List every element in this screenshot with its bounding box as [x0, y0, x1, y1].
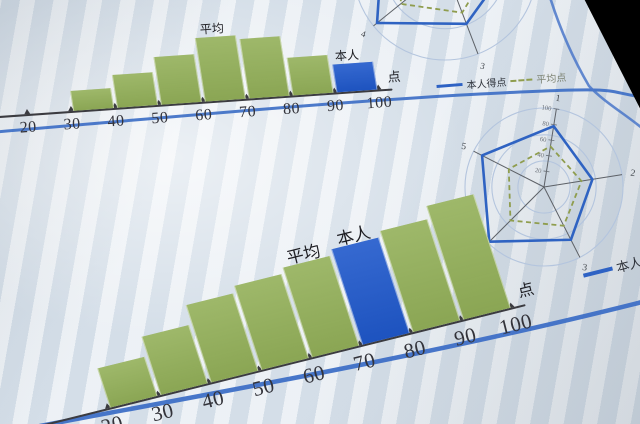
axis-tick-mark [23, 109, 29, 114]
axis-tick-label: 80 [269, 99, 314, 120]
legend-solid-line-swatch [583, 266, 613, 277]
radar-axis-label: 1 [555, 94, 562, 105]
legend-self-score-label: 本人得点 [466, 74, 507, 92]
histogram-bar-80-90 [287, 55, 334, 96]
axis-tick-label: 50 [137, 108, 182, 129]
legend-solid-line-swatch [436, 83, 462, 88]
histogram-bar-40-50 [112, 72, 158, 108]
axis-tick-label: 100 [357, 93, 402, 114]
top-histogram: 2030405060708090100平均本人点 [10, 0, 459, 160]
histogram-bar-50-60 [153, 54, 201, 104]
legend-dashed-line-swatch [510, 78, 532, 82]
axis-tick-label: 70 [225, 102, 270, 123]
axis-tick-label: 20 [6, 117, 51, 138]
points-unit-label: 点 [515, 275, 536, 302]
printed-content: 1234510080604020 1234510080604020 203040… [0, 0, 640, 424]
radar-scale-label: 60 [539, 136, 547, 144]
histogram-bar-70-80 [239, 36, 289, 98]
radar-scale-tick [553, 109, 559, 110]
radar-scale-tick [548, 140, 554, 141]
bottom-histogram: 2030405060708090100平均本人点 [62, 144, 598, 424]
axis-tick-label: 20 [84, 407, 141, 424]
radar-axis-label: 2 [630, 169, 637, 180]
legend-average-score-label: 平均点 [536, 69, 567, 86]
average-label: 平均 [199, 19, 224, 38]
axis-tick-label: 90 [313, 96, 358, 117]
histogram-bar-self-highlight [332, 62, 377, 93]
axis-tick-label: 60 [181, 105, 226, 126]
histogram-bar-60-70 [195, 35, 246, 101]
axis-tick-label: 30 [50, 114, 95, 135]
radar-scale-label: 100 [541, 104, 552, 112]
histogram-bar-30-40 [70, 88, 114, 111]
self-label: 本人 [334, 46, 359, 65]
radar-axis-label: 3 [479, 61, 486, 72]
axis-tick-label: 40 [93, 111, 138, 132]
photo-scene: 1234510080604020 1234510080604020 203040… [0, 0, 640, 424]
radar-axis-label: 5 [460, 142, 467, 153]
points-unit-label: 点 [387, 66, 401, 86]
